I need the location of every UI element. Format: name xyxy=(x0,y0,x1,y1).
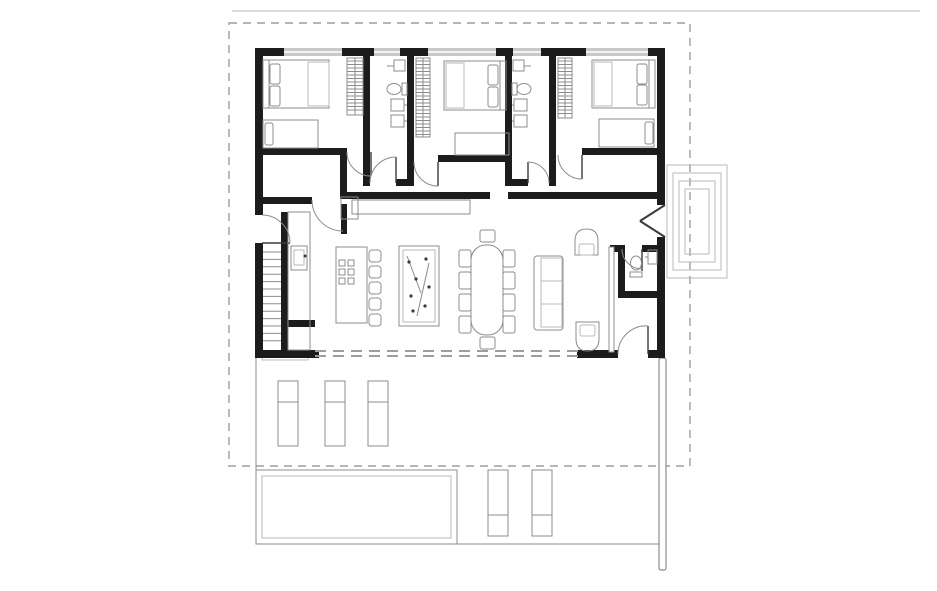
sink xyxy=(514,99,527,111)
cue-stick xyxy=(417,263,429,316)
bedroom1-bottom-wall xyxy=(255,148,340,155)
cooktop-burner xyxy=(348,260,354,266)
entrance-pivot-door xyxy=(640,205,665,221)
pillow xyxy=(265,123,273,145)
sun-lounger-head xyxy=(325,381,345,402)
console-table xyxy=(352,200,470,214)
layer-stairs xyxy=(263,252,281,341)
armchair-cushion xyxy=(580,325,595,336)
dining-chair xyxy=(480,337,495,349)
shower-head xyxy=(513,60,524,71)
dining-chair xyxy=(459,250,471,267)
headboard xyxy=(263,60,269,108)
bedroom3-bottom-wall xyxy=(582,148,665,155)
entry-steps-ring-2 xyxy=(673,173,721,270)
layer-site xyxy=(229,11,920,570)
cooktop-burner xyxy=(339,260,345,266)
layer-living xyxy=(341,197,614,352)
vestibule-wall xyxy=(255,197,312,204)
wc-top-wall-right xyxy=(642,245,665,252)
bath2-bottom-wall xyxy=(505,179,528,186)
door-swing xyxy=(312,200,343,231)
garden-fence xyxy=(659,358,666,570)
sun-lounger-body xyxy=(325,402,345,446)
dining-chair xyxy=(459,294,471,311)
blanket xyxy=(594,62,612,106)
pool-inner xyxy=(262,476,451,538)
bar-stool xyxy=(369,282,381,294)
armchair-cushion xyxy=(579,244,594,255)
door-swing xyxy=(528,162,549,183)
billiard-ball xyxy=(427,285,430,288)
dining-chair xyxy=(503,250,515,267)
entry-steps-ring-1 xyxy=(667,165,727,278)
shower-head xyxy=(394,60,405,71)
bar-stool xyxy=(369,314,381,326)
hallway-divider-right xyxy=(508,192,665,199)
floor-plan-page xyxy=(0,0,937,591)
cooktop-burner xyxy=(348,269,354,275)
billiard-ball xyxy=(409,294,412,297)
bottom-wall-corner xyxy=(648,350,665,358)
floor-plan-canvas xyxy=(0,0,937,591)
pillow xyxy=(488,87,498,107)
sun-lounger-head xyxy=(532,515,552,536)
billiard-ball xyxy=(411,309,414,312)
partition-wall xyxy=(609,247,614,352)
cooktop-burner xyxy=(348,278,354,284)
layer-wc xyxy=(630,250,657,277)
door-swing xyxy=(370,157,396,183)
door-swing xyxy=(414,162,438,186)
billiard-ball xyxy=(423,304,426,307)
sofa-cushion xyxy=(541,258,562,281)
dining-chair xyxy=(503,272,515,289)
bar-stool xyxy=(369,250,381,262)
entrance-pivot-door xyxy=(640,221,665,237)
sink xyxy=(391,115,404,127)
layer-windows xyxy=(284,48,648,56)
toilet-cistern xyxy=(402,83,407,95)
cooktop-burner xyxy=(339,278,345,284)
kitchen-sink-basin xyxy=(294,250,304,265)
blanket xyxy=(308,62,329,106)
layer-bath1 xyxy=(387,60,407,127)
toilet xyxy=(517,84,531,95)
sun-lounger-body xyxy=(278,402,298,446)
bar-stool xyxy=(369,266,381,278)
sun-lounger-body xyxy=(532,470,552,515)
stair-wall xyxy=(281,212,288,353)
pillow xyxy=(637,85,647,105)
bench xyxy=(455,133,509,155)
toilet-cistern xyxy=(512,83,517,95)
kitchen-counter xyxy=(288,212,310,350)
bedroom1-bath1-wall xyxy=(363,56,370,186)
sink xyxy=(648,250,657,264)
pool-outer xyxy=(256,470,457,544)
door-swing xyxy=(558,155,582,179)
layer-bedroom2 xyxy=(444,61,509,155)
wc-bottom-wall xyxy=(618,291,665,298)
kitchen-tap xyxy=(304,255,307,258)
pillow xyxy=(637,64,647,84)
sun-lounger-head xyxy=(488,515,508,536)
pillow xyxy=(488,65,498,85)
understair-wall xyxy=(288,320,315,327)
sofa-cushion xyxy=(541,281,562,304)
layer-wardrobes xyxy=(347,58,572,137)
sofa-cushion xyxy=(541,304,562,327)
layer-bedroom1 xyxy=(263,60,329,148)
armchair xyxy=(575,229,598,255)
bedroom1-corridor-stub xyxy=(340,148,347,199)
layer-walls xyxy=(255,48,665,358)
pool-table xyxy=(399,246,439,326)
entry-steps-ring-3 xyxy=(679,181,715,262)
bath1-bottom-wall xyxy=(396,179,414,186)
dining-chair xyxy=(480,230,495,242)
layer-bedroom3 xyxy=(592,60,655,147)
layer-doors xyxy=(262,152,665,356)
sun-lounger-head xyxy=(368,381,388,402)
dining-chair xyxy=(503,316,515,333)
sofa xyxy=(534,256,563,330)
dining-table xyxy=(471,245,503,335)
pillow xyxy=(270,86,280,106)
right-wall-upper xyxy=(657,48,665,205)
dining-chair xyxy=(459,316,471,333)
single-bed xyxy=(263,120,318,148)
bar-stool xyxy=(369,298,381,310)
left-wall-lower xyxy=(255,243,263,358)
billiard-ball xyxy=(407,260,410,263)
sink xyxy=(514,115,527,127)
layer-bath2 xyxy=(512,60,531,127)
sun-lounger-body xyxy=(368,402,388,446)
headboard xyxy=(649,60,655,108)
double-bed xyxy=(444,61,506,110)
billiard-ball xyxy=(414,277,417,280)
door-swing xyxy=(618,326,648,354)
bath2-bedroom3-wall xyxy=(549,56,556,186)
dining-chair xyxy=(503,294,515,311)
billiard-ball xyxy=(424,257,427,260)
sun-lounger-body xyxy=(488,470,508,515)
bedroom2-bottom-wall xyxy=(438,155,512,162)
pillow xyxy=(270,64,280,84)
toilet-cistern xyxy=(630,272,642,277)
single-bed xyxy=(599,119,654,147)
layer-kitchen xyxy=(288,212,381,350)
dining-chair xyxy=(459,272,471,289)
blanket xyxy=(446,63,464,108)
kitchen-island xyxy=(336,247,367,323)
toilet xyxy=(387,84,401,95)
hallway-divider-left xyxy=(345,192,490,199)
left-wall-upper xyxy=(255,48,263,215)
wc-left-wall xyxy=(618,245,625,298)
entry-steps-ring-4 xyxy=(685,189,709,254)
pillow xyxy=(645,122,653,144)
sun-lounger-head xyxy=(278,381,298,402)
sink xyxy=(391,99,404,111)
bath1-bedroom2-wall xyxy=(407,56,414,186)
cooktop-burner xyxy=(339,269,345,275)
